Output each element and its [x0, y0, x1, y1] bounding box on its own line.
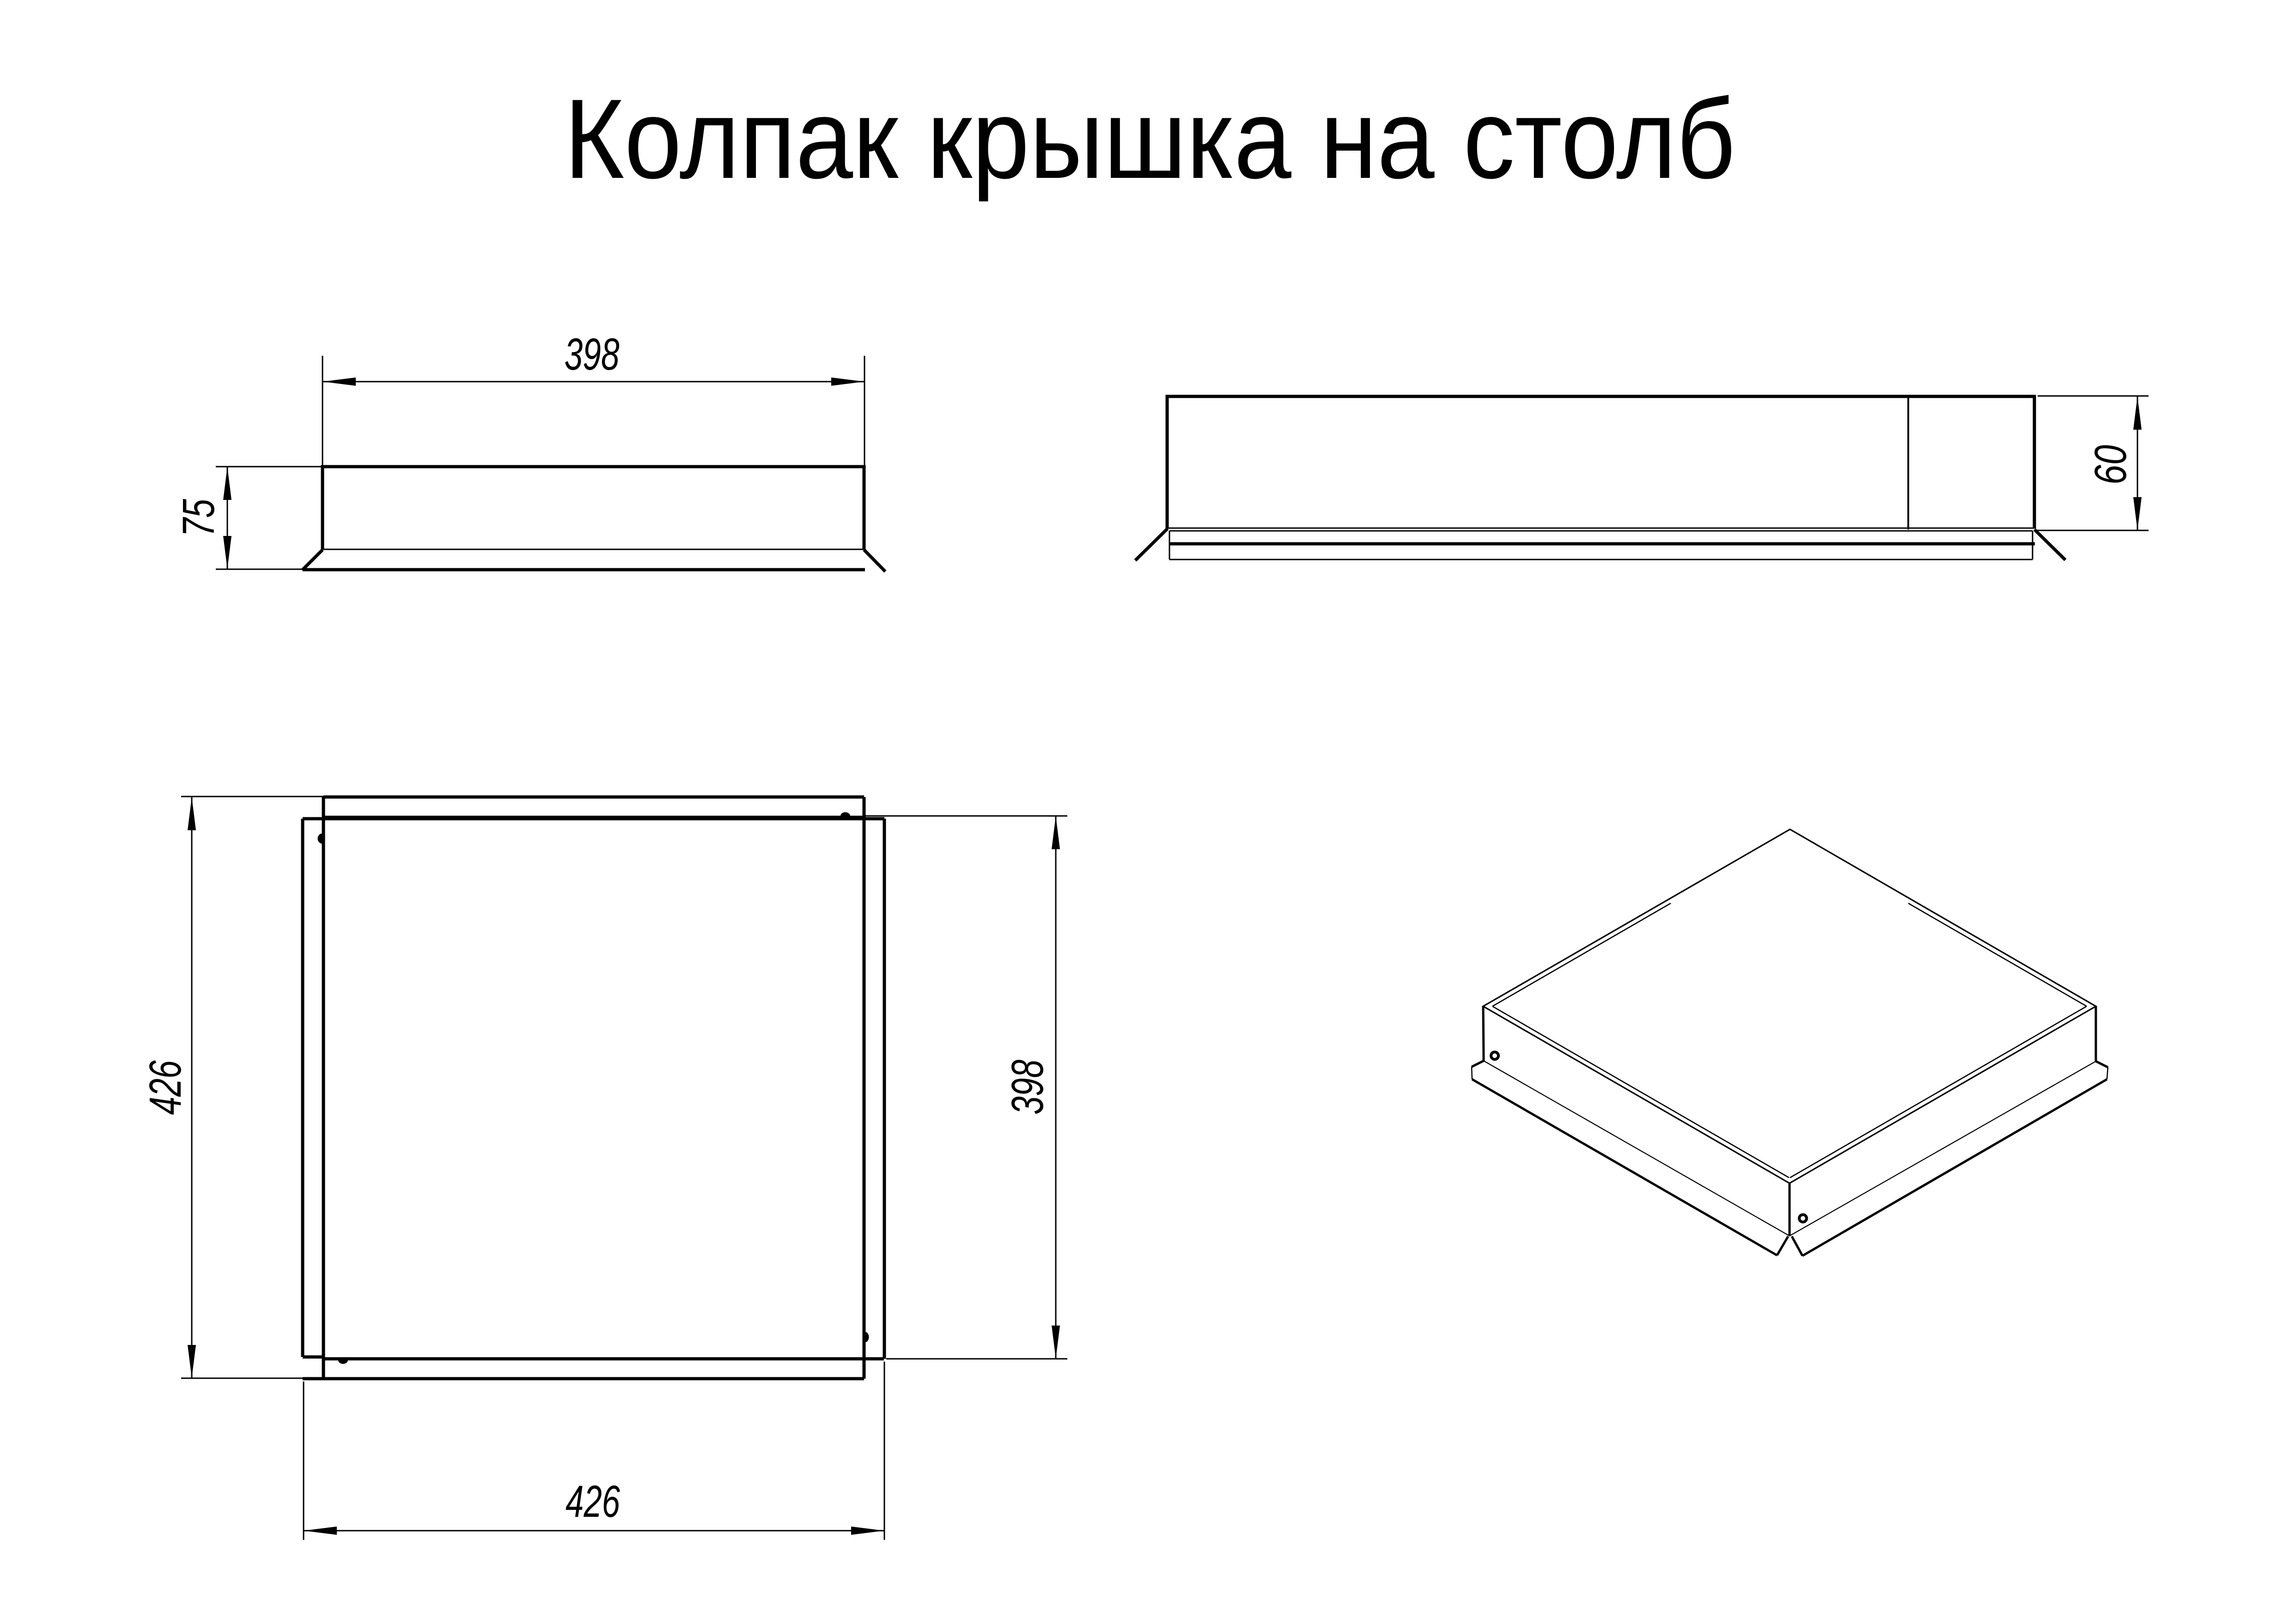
svg-text:60: 60 — [2085, 445, 2136, 485]
svg-text:75: 75 — [173, 499, 224, 537]
svg-text:426: 426 — [140, 1060, 190, 1115]
svg-text:398: 398 — [565, 329, 620, 379]
svg-text:398: 398 — [1002, 1059, 1053, 1114]
svg-text:Колпак крышка на столб: Колпак крышка на столб — [564, 75, 1735, 202]
svg-text:426: 426 — [566, 1476, 620, 1527]
